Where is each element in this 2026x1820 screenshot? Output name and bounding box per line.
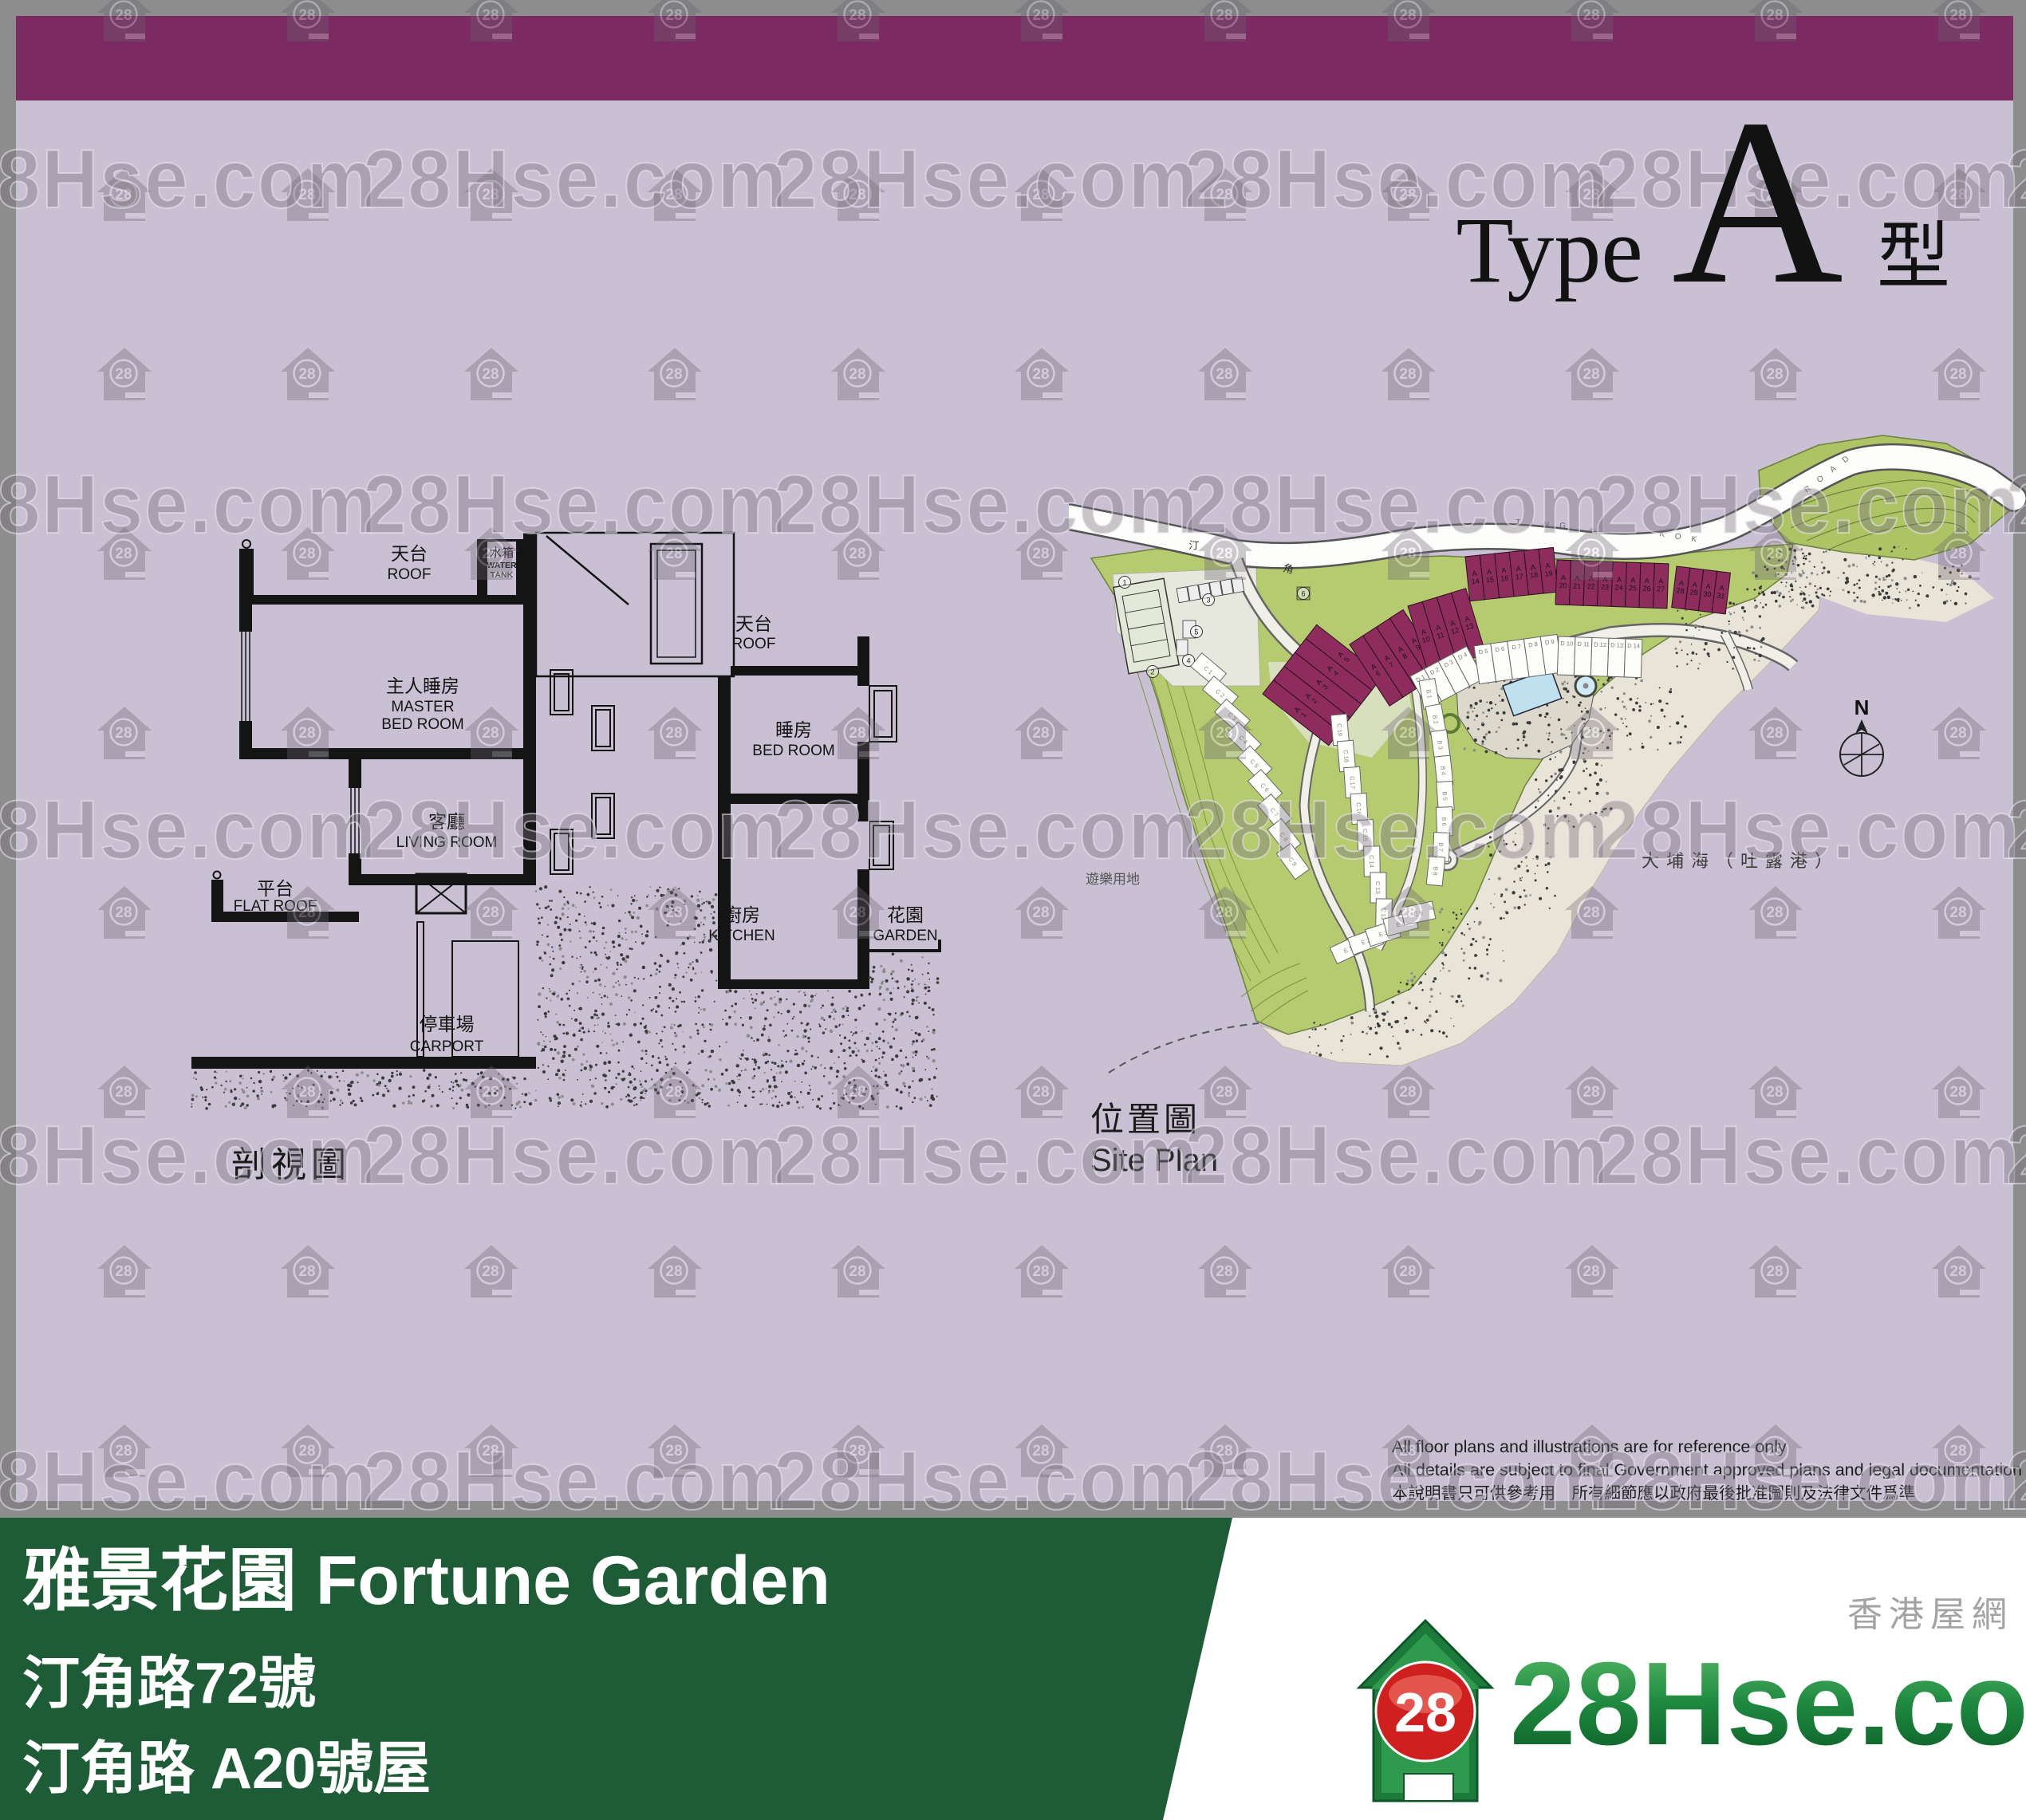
svg-text:B 2: B 2 (1431, 715, 1440, 725)
svg-text:B 6: B 6 (1441, 817, 1448, 826)
room-label: 廚房 (723, 904, 760, 925)
svg-text:6: 6 (1301, 590, 1305, 598)
svg-text:C 15: C 15 (1362, 829, 1370, 841)
svg-text:B 1: B 1 (1425, 689, 1433, 699)
svg-text:4: 4 (1186, 657, 1190, 665)
type-a-house-row: A28A29A30A31 (1672, 566, 1731, 614)
estate-name: 雅景花園 Fortune Garden (22, 1524, 830, 1624)
disclaimer: All floor plans and illustrations are fo… (1392, 1436, 2022, 1505)
svg-text:B 5: B 5 (1441, 791, 1449, 801)
room-label: TANK (491, 570, 514, 580)
room-label: 主人睡房 (386, 676, 459, 696)
logo-house-door (1404, 1774, 1453, 1801)
room-label: 水箱 (490, 546, 514, 560)
site-plan: 123456 A1A2A3A4A5A6A7A8A9A10A11A12A13A14… (1069, 423, 2026, 1188)
type-c-house: C 13 (1370, 873, 1386, 903)
svg-text:D 14: D 14 (1627, 642, 1640, 650)
disclaimer-line: All details are subject to final Governm… (1392, 1459, 2022, 1482)
svg-text:D 13: D 13 (1610, 641, 1623, 649)
svg-text:2: 2 (1150, 668, 1154, 676)
svg-text:D 9: D 9 (1544, 638, 1555, 647)
room-label: WATER (487, 561, 517, 570)
type-c-house: C 14 (1364, 846, 1381, 877)
type-letter: A (1672, 83, 1843, 321)
svg-text:D 11: D 11 (1577, 640, 1590, 648)
cross-section-drawing: 天台 ROOF 水箱 WATER TANK 主人睡房 MASTER BED RO… (112, 311, 989, 1204)
type-prefix: Type (1456, 203, 1643, 297)
svg-text:D 8: D 8 (1528, 640, 1539, 649)
compass-icon: N (1840, 695, 1883, 776)
logo-tagline: 香港屋網 (1847, 1586, 2013, 1637)
logo-badge: 28 (1394, 1681, 1456, 1743)
room-label: 停車場 (420, 1014, 475, 1034)
disclaimer-line: All floor plans and illustrations are fo… (1392, 1436, 2022, 1459)
room-label: BED ROOM (752, 743, 834, 759)
svg-text:C 17: C 17 (1348, 776, 1356, 789)
facility-marker: 3 (1203, 594, 1215, 606)
facility-marker: 5 (1191, 626, 1203, 638)
scanned-floorplan-page: { "title": { "prefix": "Type", "letter":… (0, 0, 2026, 1820)
carport-column (417, 922, 424, 1057)
svg-text:C 18: C 18 (1342, 750, 1350, 763)
type-b-house: B 6 (1436, 807, 1452, 837)
footer-banner: 雅景花園 Fortune Garden 汀角路72號 汀角路 A20號屋 28 … (0, 1518, 2026, 1820)
page-title: Type A 型 (1456, 83, 1950, 321)
facility-marker: 6 (1298, 588, 1310, 600)
room-label: CARPORT (410, 1038, 484, 1055)
svg-text:5: 5 (1194, 628, 1198, 636)
room-label: 花園 (887, 904, 924, 925)
svg-text:D 6: D 6 (1495, 645, 1505, 654)
svg-text:D 5: D 5 (1478, 648, 1488, 656)
svg-text:B 4: B 4 (1439, 766, 1447, 775)
section-caption: 剖視圖 (231, 1145, 351, 1184)
siteplan-caption-en: Site Plan (1090, 1143, 1218, 1178)
estate-address: 汀角路72號 (22, 1636, 316, 1720)
room-label: 天台 (391, 543, 428, 564)
svg-text:C 14: C 14 (1368, 855, 1375, 868)
facility-marker: 1 (1119, 577, 1131, 589)
svg-text:B 3: B 3 (1436, 740, 1444, 750)
playground-label: 遊樂用地 (1086, 872, 1140, 887)
logo-wordmark: 28Hse.com (1510, 1645, 2026, 1763)
window-left-master (242, 632, 359, 853)
svg-text:3: 3 (1206, 597, 1210, 605)
svg-text:C 16: C 16 (1355, 802, 1363, 815)
svg-text:D 12: D 12 (1594, 641, 1606, 649)
svg-text:D 7: D 7 (1512, 643, 1522, 652)
disclaimer-line: 本說明書只可供參考用 所有細節應以政府最後批准圖則及法律文件爲準 (1392, 1482, 2022, 1505)
facility-marker: 2 (1147, 666, 1159, 678)
type-a-house-row: A20A21A22A23A24A25A26A27 (1555, 560, 1669, 609)
svg-text:C 13: C 13 (1374, 881, 1382, 894)
sea-label: 大埔海（吐露港） (1642, 851, 1839, 871)
house-row: D 10D 11D 12D 13D 14 (1557, 636, 1642, 678)
compass-n-label: N (1855, 695, 1870, 719)
room-label: KITCHEN (708, 928, 775, 944)
room-label: 客廳 (428, 811, 465, 832)
siteplan-caption-cn: 位置圖 (1090, 1101, 1200, 1138)
room-label: ROOF (732, 636, 776, 652)
type-b-house: B 5 (1437, 781, 1454, 810)
room-label: LIVING ROOM (396, 834, 498, 851)
svg-text:B 7: B 7 (1437, 842, 1445, 852)
room-label: MASTER (391, 699, 454, 715)
room-label: 睡房 (775, 719, 812, 740)
logo-house-icon: 28 (1356, 1617, 1496, 1805)
room-label: 天台 (735, 613, 772, 634)
boundary-dashed-line (1109, 1023, 1259, 1073)
svg-text:C 19: C 19 (1335, 723, 1343, 737)
estate-unit: 汀角路 A20號屋 (22, 1721, 431, 1805)
section-walls (191, 533, 941, 1069)
svg-text:B 8: B 8 (1431, 866, 1439, 876)
svg-text:D 10: D 10 (1560, 640, 1573, 648)
street-name-char: 汀 (1188, 539, 1200, 552)
svg-text:1: 1 (1122, 579, 1126, 587)
type-suffix: 型 (1877, 220, 1950, 293)
room-label: FLAT ROOF (234, 898, 317, 915)
room-label: 平台 (257, 878, 294, 899)
room-label: BED ROOM (381, 716, 463, 733)
room-label: GARDEN (873, 928, 937, 944)
type-a-house-row: A14A15A16A17A18A19 (1465, 547, 1558, 601)
room-label: ROOF (388, 566, 432, 583)
type-b-house: B 8 (1426, 856, 1445, 886)
